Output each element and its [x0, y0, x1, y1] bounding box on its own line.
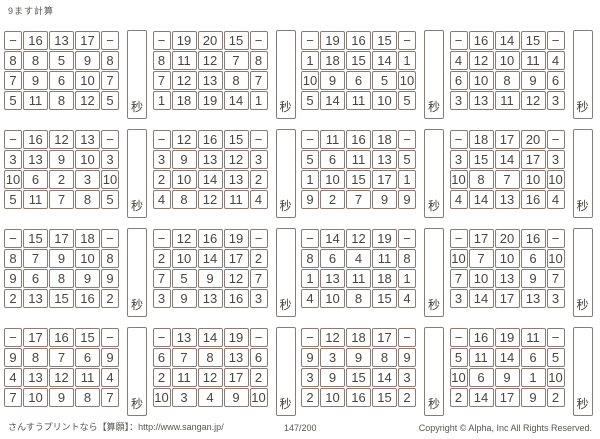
subtrahend-cell: 6: [250, 348, 268, 367]
minus-sign-cell: −: [4, 31, 22, 50]
answer-cell: 7: [49, 348, 74, 367]
minus-sign-cell: −: [450, 31, 468, 50]
grid-data-row: 98769: [4, 348, 119, 367]
subtrahend-cell: 10: [153, 388, 171, 407]
grid-data-row: 11015171: [301, 170, 416, 189]
answer-cell: 3: [172, 388, 197, 407]
grid-data-row: 21014132: [153, 170, 268, 189]
minus-sign-cell: −: [301, 229, 319, 248]
subtrahend-cell: 9: [101, 348, 119, 367]
subtrahend-cell: 3: [547, 150, 565, 169]
page-title: 9ます計算: [8, 4, 54, 17]
grid-data-row: 7121387: [153, 71, 268, 90]
seconds-box: 秒: [573, 327, 593, 416]
calc-group: −191615−11815141109651051411105秒: [300, 30, 449, 119]
answer-cell: 15: [372, 388, 397, 407]
answer-cell: 8: [75, 190, 100, 209]
answer-cell: 7: [346, 190, 371, 209]
minuend-cell: 16: [469, 328, 494, 347]
subtraction-grid: −121817−93989391514321016152: [300, 327, 417, 408]
answer-cell: 16: [346, 388, 371, 407]
calc-group: −141219−864118113111814108154秒: [300, 228, 449, 317]
subtrahend-cell: 9: [398, 348, 416, 367]
answer-cell: 2: [320, 190, 345, 209]
subtrahend-cell: 10: [547, 170, 565, 189]
answer-cell: 16: [75, 289, 100, 308]
grid-header-row: −181720−: [450, 130, 565, 149]
subtrahend-cell: 1: [398, 51, 416, 70]
answer-cell: 6: [521, 249, 546, 268]
subtrahend-cell: 9: [4, 348, 22, 367]
answer-cell: 12: [469, 51, 494, 70]
grid-header-row: −172016−: [450, 229, 565, 248]
subtrahend-cell: 2: [301, 388, 319, 407]
minuend-cell: 19: [224, 229, 249, 248]
answer-cell: 13: [198, 71, 223, 90]
grid-header-row: −191615−: [301, 31, 416, 50]
answer-cell: 14: [469, 190, 494, 209]
subtrahend-cell: 7: [153, 269, 171, 288]
answer-cell: 17: [495, 289, 520, 308]
subtrahend-cell: 7: [250, 269, 268, 288]
answer-cell: 9: [49, 388, 74, 407]
subtrahend-cell: 2: [153, 170, 171, 189]
answer-cell: 9: [49, 249, 74, 268]
answer-cell: 13: [224, 170, 249, 189]
minuend-cell: 12: [320, 328, 345, 347]
calc-group: −111618−56111351101517192799秒: [300, 129, 449, 218]
calc-group: −121619−210141727591273913163秒: [152, 228, 301, 317]
subtrahend-cell: 8: [4, 249, 22, 268]
subtrahend-cell: 3: [398, 368, 416, 387]
answer-cell: 7: [495, 170, 520, 189]
minuend-cell: 20: [198, 31, 223, 50]
subtrahend-cell: 6: [547, 71, 565, 90]
minus-sign-cell: −: [547, 328, 565, 347]
answer-cell: 19: [198, 91, 223, 110]
minus-sign-cell: −: [250, 130, 268, 149]
answer-cell: 11: [495, 91, 520, 110]
minuend-cell: 16: [23, 31, 48, 50]
subtrahend-cell: 5: [301, 91, 319, 110]
subtraction-grid: −161415−4121011461089631311123: [449, 30, 566, 111]
minus-sign-cell: −: [450, 229, 468, 248]
answer-cell: 11: [172, 51, 197, 70]
answer-cell: 12: [75, 91, 100, 110]
answer-cell: 9: [172, 150, 197, 169]
grid-data-row: 1069110: [450, 368, 565, 387]
grid-header-row: −171615−: [4, 328, 119, 347]
grid-data-row: 88598: [4, 51, 119, 70]
grid-data-row: 93989: [301, 348, 416, 367]
minus-sign-cell: −: [4, 328, 22, 347]
grid-data-row: 3913163: [153, 289, 268, 308]
answer-cell: 13: [495, 269, 520, 288]
calc-group: −131419−678136211121721034910秒: [152, 327, 301, 416]
answer-cell: 13: [198, 150, 223, 169]
subtrahend-cell: 1: [398, 170, 416, 189]
answer-cell: 14: [469, 289, 494, 308]
grid-header-row: −141219−: [301, 229, 416, 248]
subtrahend-cell: 3: [4, 150, 22, 169]
grid-data-row: 1096510: [301, 71, 416, 90]
subtrahend-cell: 4: [450, 51, 468, 70]
grid-data-row: 5611135: [301, 150, 416, 169]
subtrahend-cell: 4: [301, 289, 319, 308]
answer-cell: 8: [346, 289, 371, 308]
answer-cell: 15: [49, 289, 74, 308]
subtrahend-cell: 9: [398, 190, 416, 209]
answer-cell: 8: [198, 348, 223, 367]
answer-cell: 6: [75, 348, 100, 367]
calc-group: −192015−8111278712138711819141秒: [152, 30, 301, 119]
answer-cell: 8: [75, 388, 100, 407]
answer-cell: 12: [224, 150, 249, 169]
seconds-label: 秒: [428, 197, 440, 214]
answer-cell: 8: [49, 91, 74, 110]
grid-row: −151718−8791089689921315162秒−121619−2101…: [3, 228, 597, 317]
answer-cell: 12: [198, 51, 223, 70]
grid-header-row: −111618−: [301, 130, 416, 149]
answer-cell: 10: [75, 150, 100, 169]
subtrahend-cell: 9: [301, 190, 319, 209]
subtrahend-cell: 3: [153, 289, 171, 308]
answer-cell: 6: [49, 71, 74, 90]
grid-data-row: 21112172: [153, 368, 268, 387]
answer-cell: 9: [172, 289, 197, 308]
subtrahend-cell: 9: [301, 348, 319, 367]
subtraction-grid: −181720−315141731087101041413164: [449, 129, 566, 210]
subtrahend-cell: 8: [250, 51, 268, 70]
answer-cell: 13: [23, 150, 48, 169]
answer-cell: 13: [320, 269, 345, 288]
grid-header-row: −151718−: [4, 229, 119, 248]
answer-cell: 15: [346, 368, 371, 387]
minuend-cell: 15: [372, 31, 397, 50]
subtrahend-cell: 1: [250, 91, 268, 110]
minus-sign-cell: −: [250, 31, 268, 50]
minus-sign-cell: −: [547, 229, 565, 248]
answer-cell: 15: [469, 150, 494, 169]
subtrahend-cell: 1: [301, 51, 319, 70]
seconds-label: 秒: [279, 395, 291, 412]
subtrahend-cell: 4: [250, 190, 268, 209]
minuend-cell: 16: [346, 31, 371, 50]
minuend-cell: 13: [172, 328, 197, 347]
subtrahend-cell: 3: [450, 91, 468, 110]
grid-data-row: 10710610: [450, 249, 565, 268]
minuend-cell: 17: [23, 328, 48, 347]
answer-cell: 10: [75, 71, 100, 90]
minus-sign-cell: −: [153, 31, 171, 50]
grid-data-row: 41210114: [450, 51, 565, 70]
answer-cell: 10: [320, 289, 345, 308]
seconds-label: 秒: [428, 296, 440, 313]
minuend-cell: 16: [469, 31, 494, 50]
subtrahend-cell: 8: [398, 249, 416, 268]
subtrahend-cell: 5: [4, 91, 22, 110]
minuend-cell: 13: [75, 130, 100, 149]
answer-cell: 9: [372, 190, 397, 209]
subtrahend-cell: 2: [153, 249, 171, 268]
grid-header-row: −161911−: [450, 328, 565, 347]
seconds-box: 秒: [573, 228, 593, 317]
seconds-label: 秒: [576, 296, 588, 313]
answer-cell: 11: [224, 190, 249, 209]
subtrahend-cell: 10: [250, 388, 268, 407]
calc-group: −151718−8791089689921315162秒: [3, 228, 152, 317]
minus-sign-cell: −: [301, 31, 319, 50]
seconds-box: 秒: [127, 30, 147, 119]
seconds-box: 秒: [424, 228, 444, 317]
answer-cell: 18: [172, 91, 197, 110]
seconds-label: 秒: [428, 98, 440, 115]
footer-site-credit: さんすうプリントなら【算願】：http://www.sangan.jp/: [8, 420, 224, 433]
answer-cell: 8: [372, 348, 397, 367]
minus-sign-cell: −: [101, 31, 119, 50]
seconds-label: 秒: [131, 296, 143, 313]
minus-sign-cell: −: [398, 130, 416, 149]
answer-cell: 10: [469, 269, 494, 288]
answer-cell: 9: [23, 71, 48, 90]
subtrahend-cell: 4: [547, 51, 565, 70]
answer-cell: 11: [75, 368, 100, 387]
minuend-cell: 20: [521, 130, 546, 149]
grid-data-row: 96899: [4, 269, 119, 288]
grid-data-row: 3915143: [301, 368, 416, 387]
subtrahend-cell: 7: [153, 71, 171, 90]
subtrahend-cell: 8: [101, 51, 119, 70]
subtrahend-cell: 1: [153, 91, 171, 110]
subtrahend-cell: 10: [547, 249, 565, 268]
answer-cell: 9: [521, 71, 546, 90]
answer-cell: 18: [372, 269, 397, 288]
answer-cell: 6: [23, 269, 48, 288]
minuend-cell: 12: [172, 229, 197, 248]
seconds-label: 秒: [131, 98, 143, 115]
grid-data-row: 4812114: [153, 190, 268, 209]
subtrahend-cell: 2: [398, 388, 416, 407]
minuend-cell: 15: [23, 229, 48, 248]
minuend-cell: 12: [49, 130, 74, 149]
minuend-cell: 18: [346, 328, 371, 347]
subtrahend-cell: 7: [4, 388, 22, 407]
subtraction-grid: −192015−8111278712138711819141: [152, 30, 269, 111]
answer-cell: 6: [320, 249, 345, 268]
answer-cell: 13: [224, 348, 249, 367]
calc-group: −171615−9876941312114710987秒: [3, 327, 152, 416]
answer-cell: 16: [224, 289, 249, 308]
grid-data-row: 610896: [450, 71, 565, 90]
subtrahend-cell: 3: [547, 91, 565, 110]
minuend-cell: 19: [320, 31, 345, 50]
answer-cell: 6: [23, 170, 48, 189]
subtrahend-cell: 2: [250, 249, 268, 268]
grid-data-row: 759127: [153, 269, 268, 288]
seconds-label: 秒: [279, 296, 291, 313]
subtraction-grid: −161911−511146510691102141792: [449, 327, 566, 408]
answer-cell: 17: [224, 368, 249, 387]
minuend-cell: 11: [521, 328, 546, 347]
grid-header-row: −161317−: [4, 31, 119, 50]
answer-cell: 16: [521, 190, 546, 209]
subtraction-grid: −171615−9876941312114710987: [3, 327, 120, 408]
subtrahend-cell: 10: [450, 170, 468, 189]
subtrahend-cell: 7: [4, 71, 22, 90]
answer-cell: 12: [224, 269, 249, 288]
grid-data-row: 3913123: [153, 150, 268, 169]
grids-container: −161317−885987961075118125秒−192015−81112…: [3, 30, 597, 416]
answer-cell: 13: [495, 190, 520, 209]
subtrahend-cell: 10: [450, 249, 468, 268]
answer-cell: 9: [521, 269, 546, 288]
minuend-cell: 16: [198, 130, 223, 149]
answer-cell: 7: [469, 249, 494, 268]
seconds-label: 秒: [279, 197, 291, 214]
subtrahend-cell: 5: [101, 91, 119, 110]
answer-cell: 10: [172, 249, 197, 268]
answer-cell: 10: [495, 51, 520, 70]
calc-group: −161911−511146510691102141792秒: [449, 327, 598, 416]
grid-data-row: 864118: [301, 249, 416, 268]
answer-cell: 17: [521, 150, 546, 169]
answer-cell: 17: [224, 249, 249, 268]
grid-data-row: 5118125: [4, 91, 119, 110]
grid-data-row: 1034910: [153, 388, 268, 407]
subtrahend-cell: 8: [153, 51, 171, 70]
answer-cell: 13: [372, 150, 397, 169]
footer-page-number: 147/200: [284, 423, 317, 433]
seconds-label: 秒: [576, 197, 588, 214]
answer-cell: 7: [172, 348, 197, 367]
subtrahend-cell: 9: [4, 269, 22, 288]
seconds-box: 秒: [573, 129, 593, 218]
calc-group: −161213−31391031062310511785秒: [3, 129, 152, 218]
answer-cell: 8: [23, 348, 48, 367]
subtrahend-cell: 3: [153, 150, 171, 169]
subtraction-grid: −131419−678136211121721034910: [152, 327, 269, 408]
answer-cell: 14: [320, 91, 345, 110]
answer-cell: 11: [346, 91, 371, 110]
answer-cell: 14: [372, 51, 397, 70]
grid-data-row: 21014172: [153, 249, 268, 268]
answer-cell: 8: [495, 71, 520, 90]
subtrahend-cell: 2: [450, 388, 468, 407]
grid-data-row: 21016152: [301, 388, 416, 407]
answer-cell: 18: [320, 51, 345, 70]
answer-cell: 10: [172, 170, 197, 189]
minuend-cell: 19: [495, 328, 520, 347]
subtrahend-cell: 2: [101, 289, 119, 308]
answer-cell: 9: [49, 150, 74, 169]
answer-cell: 12: [49, 368, 74, 387]
subtrahend-cell: 5: [398, 91, 416, 110]
minuend-cell: 15: [224, 31, 249, 50]
minuend-cell: 19: [172, 31, 197, 50]
seconds-box: 秒: [276, 228, 296, 317]
seconds-label: 秒: [279, 98, 291, 115]
answer-cell: 6: [521, 348, 546, 367]
minus-sign-cell: −: [301, 130, 319, 149]
subtrahend-cell: 4: [153, 190, 171, 209]
answer-cell: 9: [521, 388, 546, 407]
grid-data-row: 31311123: [450, 91, 565, 110]
answer-cell: 10: [75, 249, 100, 268]
answer-cell: 2: [49, 170, 74, 189]
grid-header-row: −121619−: [153, 229, 268, 248]
grid-header-row: −121615−: [153, 130, 268, 149]
calc-group: −181720−315141731087101041413164秒: [449, 129, 598, 218]
subtrahend-cell: 8: [101, 249, 119, 268]
subtrahend-cell: 5: [398, 150, 416, 169]
grid-data-row: 11311181: [301, 269, 416, 288]
answer-cell: 9: [198, 269, 223, 288]
answer-cell: 5: [49, 51, 74, 70]
grid-data-row: 796107: [4, 71, 119, 90]
answer-cell: 13: [23, 368, 48, 387]
subtrahend-cell: 3: [250, 150, 268, 169]
answer-cell: 14: [495, 348, 520, 367]
answer-cell: 11: [23, 91, 48, 110]
answer-cell: 11: [346, 269, 371, 288]
minuend-cell: 20: [495, 229, 520, 248]
minuend-cell: 15: [224, 130, 249, 149]
subtrahend-cell: 1: [301, 269, 319, 288]
minus-sign-cell: −: [4, 229, 22, 248]
subtrahend-cell: 10: [4, 170, 22, 189]
minuend-cell: 14: [320, 229, 345, 248]
subtraction-grid: −151718−8791089689921315162: [3, 228, 120, 309]
answer-cell: 11: [346, 150, 371, 169]
answer-cell: 17: [372, 170, 397, 189]
answer-cell: 6: [346, 71, 371, 90]
answer-cell: 8: [224, 71, 249, 90]
minuend-cell: 16: [198, 229, 223, 248]
grid-data-row: 41312114: [4, 368, 119, 387]
grid-data-row: 7101397: [450, 269, 565, 288]
grid-data-row: 21315162: [4, 289, 119, 308]
minuend-cell: 18: [372, 130, 397, 149]
answer-cell: 10: [320, 388, 345, 407]
answer-cell: 15: [346, 51, 371, 70]
subtrahend-cell: 8: [301, 249, 319, 268]
answer-cell: 5: [372, 71, 397, 90]
minuend-cell: 17: [469, 229, 494, 248]
answer-cell: 9: [320, 368, 345, 387]
subtrahend-cell: 5: [301, 150, 319, 169]
seconds-label: 秒: [576, 395, 588, 412]
subtraction-grid: −141219−864118113111814108154: [300, 228, 417, 309]
answer-cell: 9: [346, 348, 371, 367]
subtrahend-cell: 4: [398, 289, 416, 308]
subtrahend-cell: 2: [250, 368, 268, 387]
subtrahend-cell: 4: [547, 190, 565, 209]
answer-cell: 12: [198, 368, 223, 387]
minuend-cell: 17: [75, 31, 100, 50]
answer-cell: 3: [75, 170, 100, 189]
grid-header-row: −131419−: [153, 328, 268, 347]
minuend-cell: 13: [49, 31, 74, 50]
subtraction-grid: −161213−31391031062310511785: [3, 129, 120, 210]
grid-data-row: 710987: [4, 388, 119, 407]
answer-cell: 14: [495, 150, 520, 169]
subtrahend-cell: 7: [450, 269, 468, 288]
grid-data-row: 8111278: [153, 51, 268, 70]
subtrahend-cell: 6: [450, 71, 468, 90]
footer: さんすうプリントなら【算願】：http://www.sangan.jp/ 147…: [0, 421, 600, 433]
answer-cell: 13: [198, 289, 223, 308]
grid-data-row: 10871010: [450, 170, 565, 189]
